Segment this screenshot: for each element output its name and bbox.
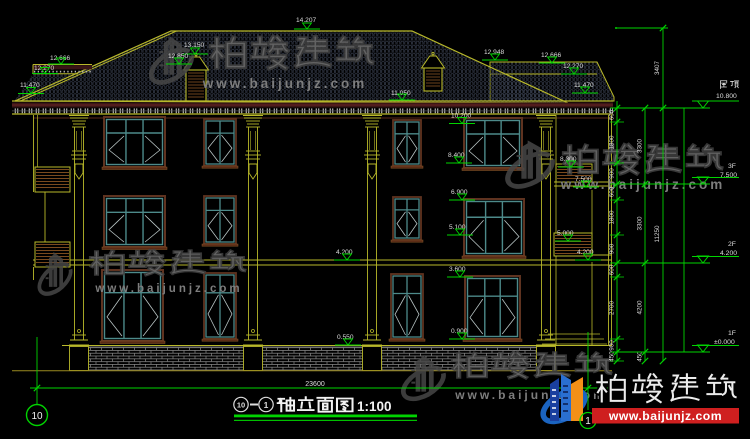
svg-text:www.baijunjz.com: www.baijunjz.com <box>202 76 368 91</box>
svg-text:3407: 3407 <box>654 61 661 76</box>
svg-text:www.baijunjz.com: www.baijunjz.com <box>94 283 242 295</box>
svg-text:1: 1 <box>585 416 591 427</box>
svg-text:11250: 11250 <box>654 225 661 243</box>
svg-text:3F: 3F <box>728 163 736 170</box>
svg-text:2F: 2F <box>728 241 736 248</box>
svg-text:12.270: 12.270 <box>34 65 55 72</box>
svg-text:600: 600 <box>609 264 616 275</box>
svg-text:10.800: 10.800 <box>716 93 737 100</box>
svg-text:12.666: 12.666 <box>50 55 71 62</box>
svg-text:11.470: 11.470 <box>574 82 594 89</box>
svg-text:11.050: 11.050 <box>391 90 411 97</box>
svg-text:10: 10 <box>31 411 43 422</box>
svg-text:900: 900 <box>609 168 616 179</box>
svg-text:www.baijunjz.com: www.baijunjz.com <box>608 409 722 423</box>
svg-text:600: 600 <box>609 186 616 197</box>
svg-text:±0.000: ±0.000 <box>714 339 735 346</box>
svg-text:600: 600 <box>609 109 616 120</box>
svg-text:4200: 4200 <box>637 300 644 315</box>
svg-text:12.270: 12.270 <box>563 63 584 70</box>
svg-text:4.200: 4.200 <box>720 250 737 257</box>
svg-text:3300: 3300 <box>637 216 644 231</box>
svg-text:900: 900 <box>609 340 616 351</box>
svg-text:1800: 1800 <box>609 210 616 225</box>
svg-text:1F: 1F <box>728 330 736 337</box>
svg-text:12.666: 12.666 <box>541 52 562 59</box>
svg-text:2700: 2700 <box>609 301 616 316</box>
svg-text:3300: 3300 <box>637 139 644 154</box>
svg-text:1:100: 1:100 <box>357 399 392 414</box>
svg-text:10.200: 10.200 <box>451 113 472 120</box>
svg-text:1: 1 <box>264 400 269 410</box>
svg-text:7.500: 7.500 <box>720 172 737 179</box>
svg-text:10: 10 <box>237 401 245 410</box>
svg-text:23600: 23600 <box>305 381 325 388</box>
svg-text:12.948: 12.948 <box>484 49 505 56</box>
svg-text:900: 900 <box>609 243 616 254</box>
svg-text:1800: 1800 <box>609 135 616 150</box>
svg-text:12.850: 12.850 <box>168 53 189 60</box>
